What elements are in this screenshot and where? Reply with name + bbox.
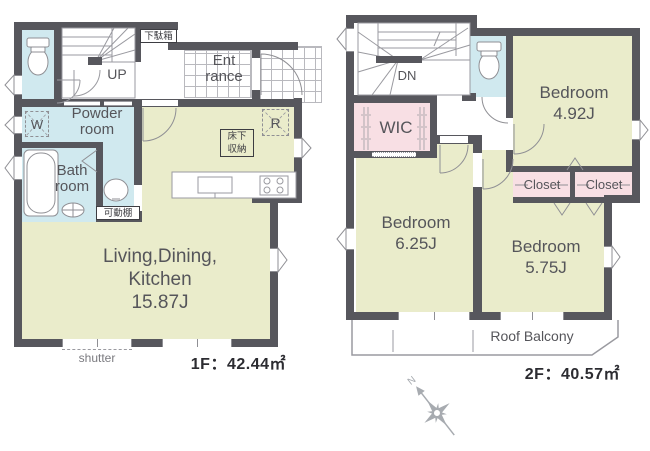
shutter-dashed-line <box>62 349 132 350</box>
bedroom-625-notch <box>437 144 473 158</box>
ldk-line2: Kitchen <box>58 268 262 291</box>
powder-room-label: Powder room <box>55 106 139 138</box>
wall-1f-kitchen-step <box>252 194 302 203</box>
closet-b-label: Closet <box>576 177 632 192</box>
window-living-south-b <box>162 339 232 347</box>
window-living-south-a <box>62 339 132 347</box>
wall-2f-closet-divider <box>570 172 575 197</box>
bath-line1: Bath <box>40 163 104 179</box>
compass-north-label: N <box>406 375 418 388</box>
stairs-down-label: DN <box>389 68 425 83</box>
bedroom-625-label: Bedroom 6.25J <box>360 212 472 254</box>
bedroom-575-name: Bedroom <box>488 236 604 257</box>
window-kitchen-right <box>294 138 302 158</box>
wall-2f-closet-bottom <box>513 197 604 203</box>
underfloor-storage-label: 床下 収納 <box>220 129 254 157</box>
shutter-label: shutter <box>66 351 128 365</box>
window-stairs-2f <box>346 28 354 52</box>
movable-shelf-text: 可動棚 <box>104 208 133 219</box>
window-bed575-south <box>500 312 564 320</box>
ldk-mid-area <box>142 195 270 222</box>
floor-plan-page: { "floor1": { "area_label": "1F：42.44㎡",… <box>0 0 650 451</box>
bedroom-625-size: 6.25J <box>360 233 472 254</box>
shoe-cabinet-label: 下駄箱 <box>140 29 177 43</box>
ldk-line1: Living,Dining, <box>58 245 262 268</box>
washer-box: W <box>25 111 49 137</box>
washer-text: W <box>31 117 43 132</box>
underfloor-text-2: 収納 <box>221 143 253 156</box>
window-toilet-1f <box>14 75 22 95</box>
wic-door-opening <box>372 152 416 157</box>
bath-room-label: Bath room <box>40 163 104 195</box>
wall-1f-right-lower <box>270 203 278 347</box>
wall-2f-left <box>346 15 354 320</box>
toilet-2f-area <box>468 33 508 97</box>
bedroom-492-label: Bedroom 4.92J <box>515 82 633 124</box>
window-bath <box>14 156 22 180</box>
bedroom-575-label: Bedroom 5.75J <box>488 236 604 278</box>
wall-1f-bottom <box>14 339 278 347</box>
wall-2f-top-right <box>462 28 640 36</box>
bedroom-492-size: 4.92J <box>515 103 633 124</box>
window-living-right <box>270 248 278 272</box>
wall-2f-right-upper <box>632 28 640 197</box>
wall-2f-bottom <box>346 312 612 320</box>
floor2-area-label: 2F：40.57㎡ <box>512 360 620 384</box>
window-bed492-right <box>632 120 640 140</box>
stairs-2f <box>358 23 470 95</box>
entrance-line2: rance <box>192 69 256 85</box>
bed6-door-gap <box>440 136 468 143</box>
window-powder <box>14 116 22 134</box>
toilet-2f-door-arc <box>482 97 508 123</box>
compass-rose: N <box>396 367 467 445</box>
closet-a-label: Closet <box>514 177 570 192</box>
ldk-size: 15.87J <box>58 291 262 314</box>
movable-shelf-label: 可動棚 <box>96 206 140 220</box>
ldk-door-gap <box>142 100 178 106</box>
window-bed625-left <box>346 228 354 250</box>
powder-line1: Powder <box>55 106 139 122</box>
wall-2f-toilet-left <box>462 36 469 99</box>
wall-2f-toilet-right <box>506 28 513 172</box>
wall-1f-powder-bath <box>22 142 102 148</box>
wic-label: WIC <box>368 118 424 138</box>
wall-1f-toilet-right <box>54 22 62 107</box>
fridge-box: R <box>262 109 289 136</box>
wall-2f-stairs-bottom <box>346 95 437 103</box>
floor1-area-label: 1F：42.44㎡ <box>178 350 286 374</box>
bedroom-625-name: Bedroom <box>360 212 472 233</box>
bed5-door-gap <box>473 153 482 187</box>
roof-balcony-label: Roof Balcony <box>476 328 588 344</box>
window-bed625-south <box>398 312 470 320</box>
wall-2f-toilet-bottom <box>462 93 476 101</box>
wall-2f-wic-right <box>430 95 437 151</box>
bed4-door-gap <box>506 118 513 150</box>
ldk-label: Living,Dining, Kitchen 15.87J <box>58 245 262 314</box>
underfloor-text-1: 床下 <box>221 130 253 143</box>
wall-2f-top-left <box>346 15 477 23</box>
window-bed575-right <box>604 246 612 268</box>
stairs-up-label: UP <box>98 66 136 82</box>
toilet-1f-area <box>22 28 54 107</box>
bath-line2: room <box>40 179 104 195</box>
fridge-text: R <box>270 115 280 131</box>
shoe-cabinet-text: 下駄箱 <box>144 31 173 42</box>
bedroom-575-size: 5.75J <box>488 257 604 278</box>
entrance-line1: Ent <box>192 53 256 69</box>
wall-1f-entrance-top <box>168 42 298 50</box>
bedroom-492-name: Bedroom <box>515 82 633 103</box>
porch-tile-floor <box>260 46 322 103</box>
entrance-label: Ent rance <box>192 53 256 85</box>
wall-1f-left <box>14 22 22 347</box>
powder-line2: room <box>55 122 139 138</box>
